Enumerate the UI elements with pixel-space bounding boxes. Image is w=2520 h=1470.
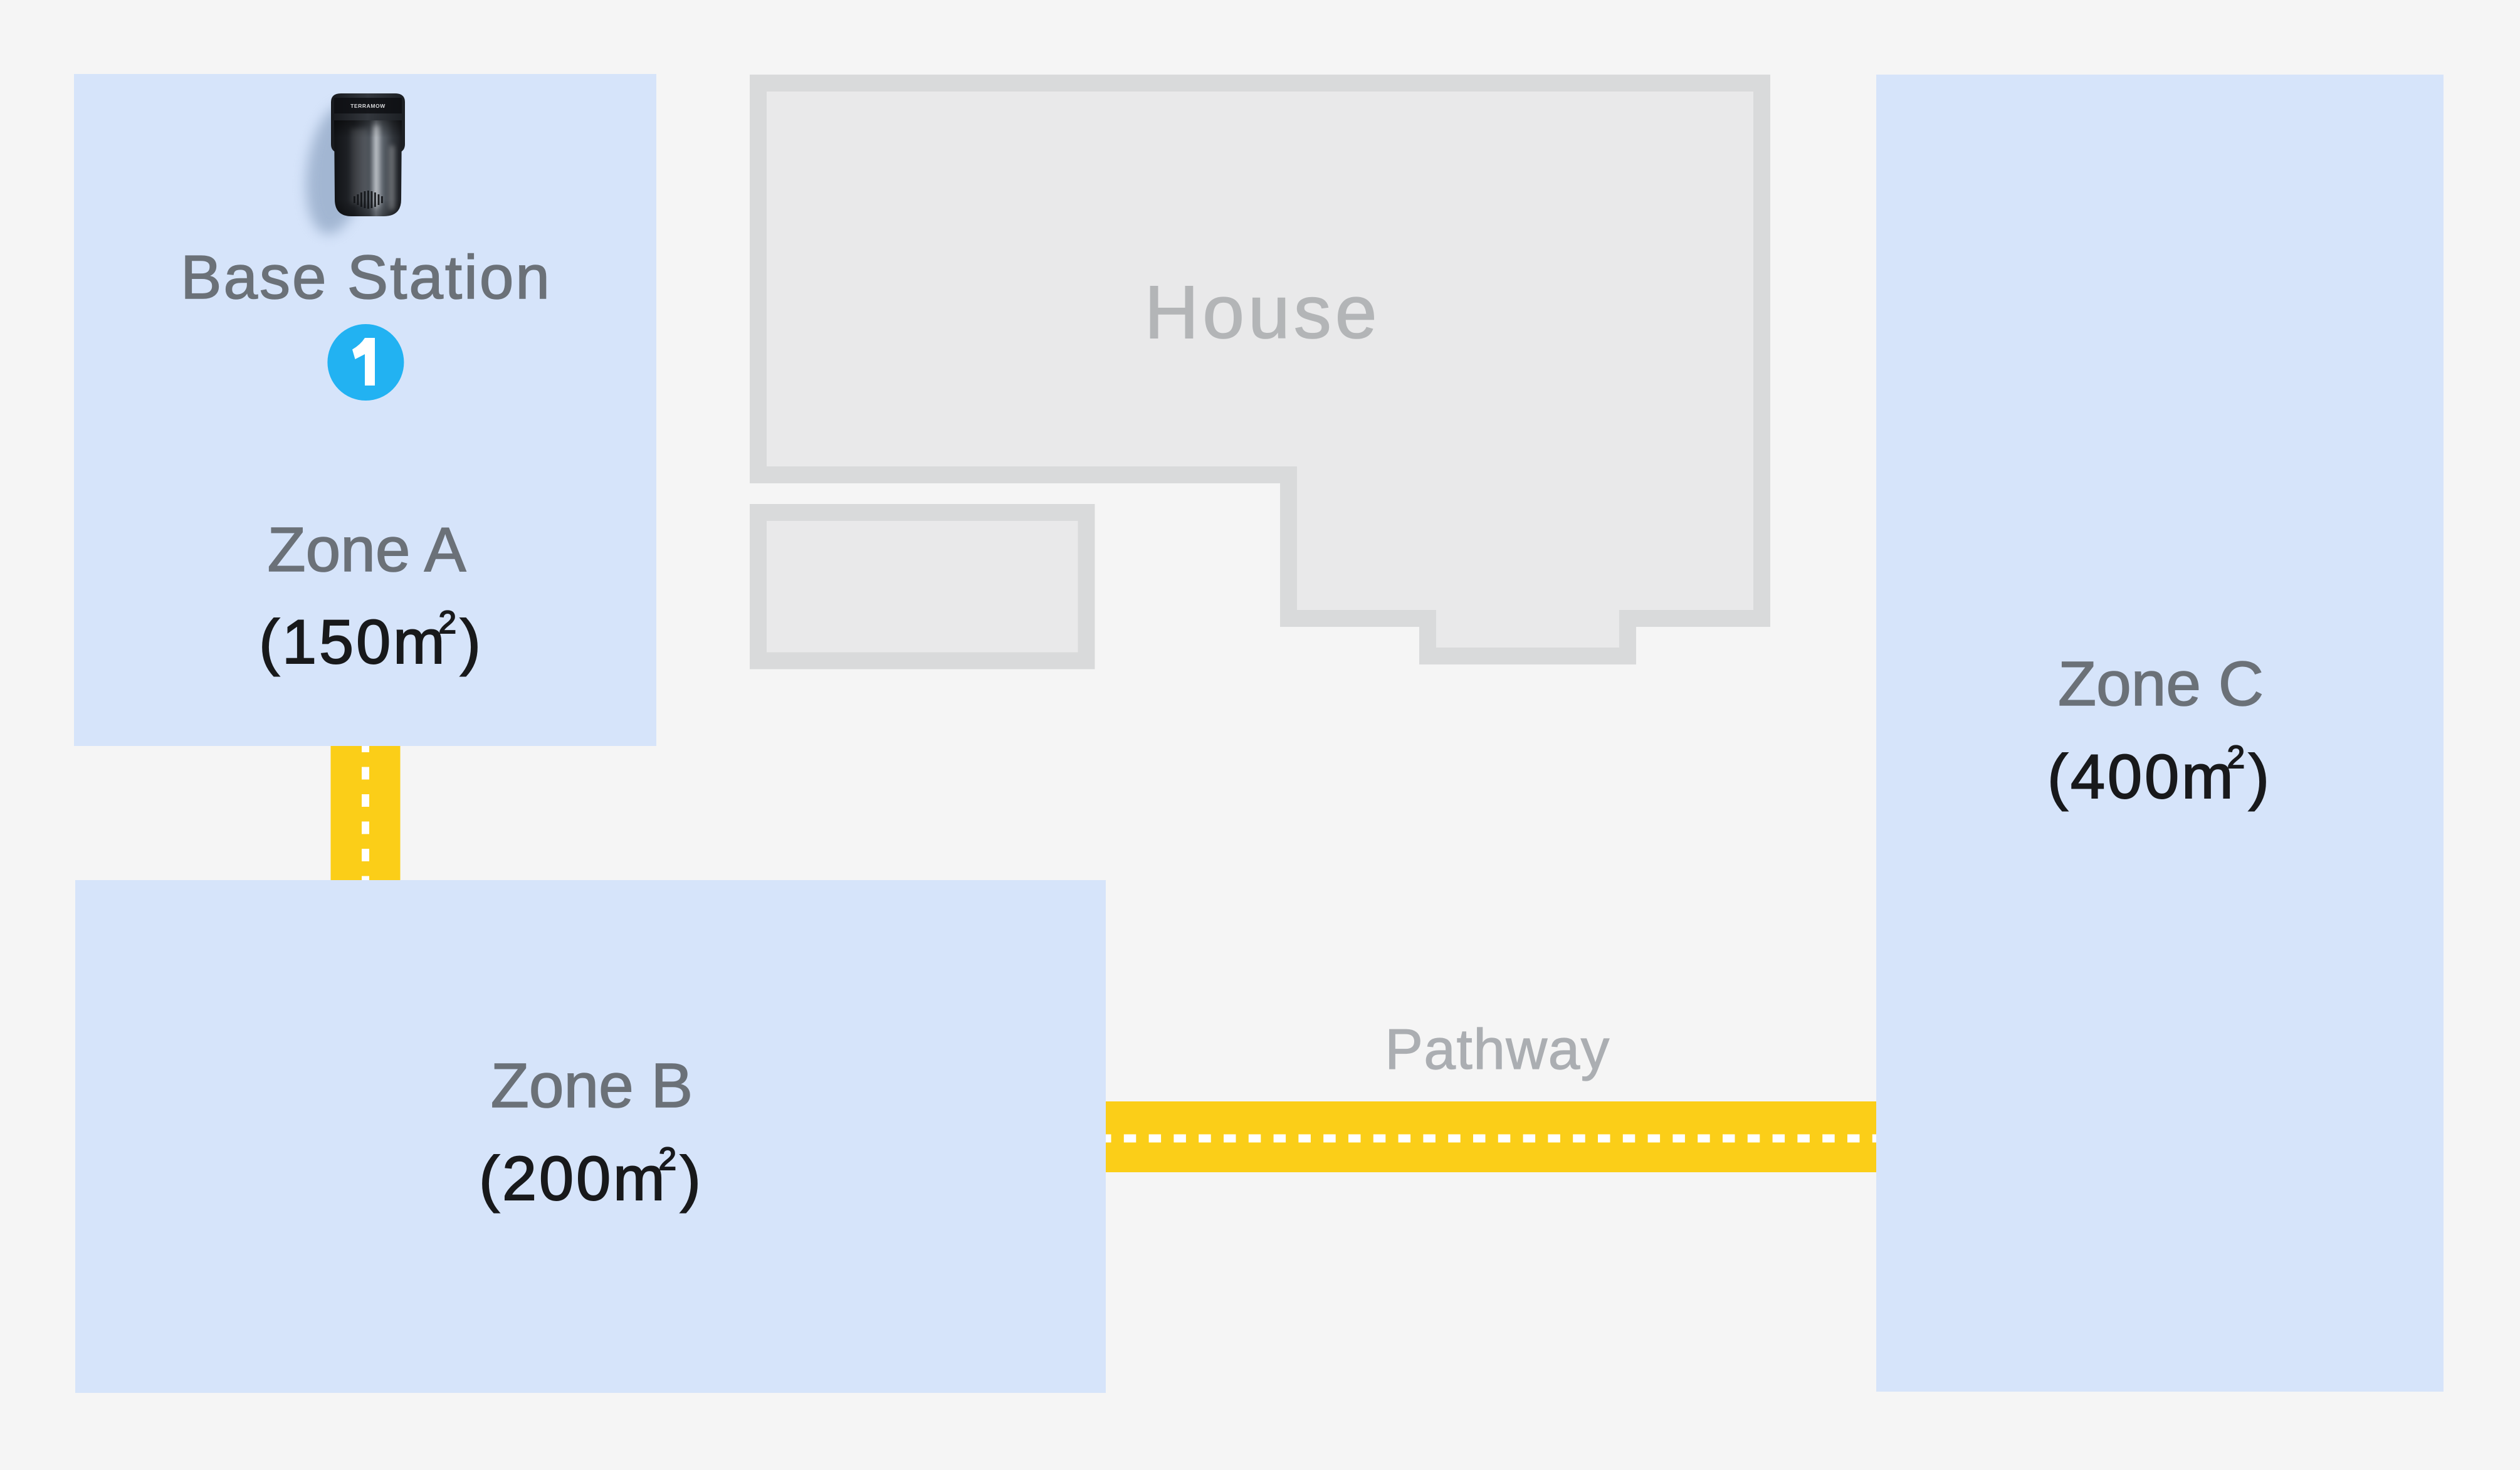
svg-text:Zone A: Zone A	[268, 515, 466, 585]
svg-text:Zone B: Zone B	[491, 1051, 693, 1121]
svg-text:Zone C: Zone C	[2058, 649, 2264, 719]
svg-text:Base Station: Base Station	[181, 243, 552, 312]
svg-text:TERRAMOW: TERRAMOW	[350, 103, 386, 109]
svg-text:Pathway: Pathway	[1385, 1018, 1610, 1081]
svg-text:House: House	[1145, 270, 1381, 354]
